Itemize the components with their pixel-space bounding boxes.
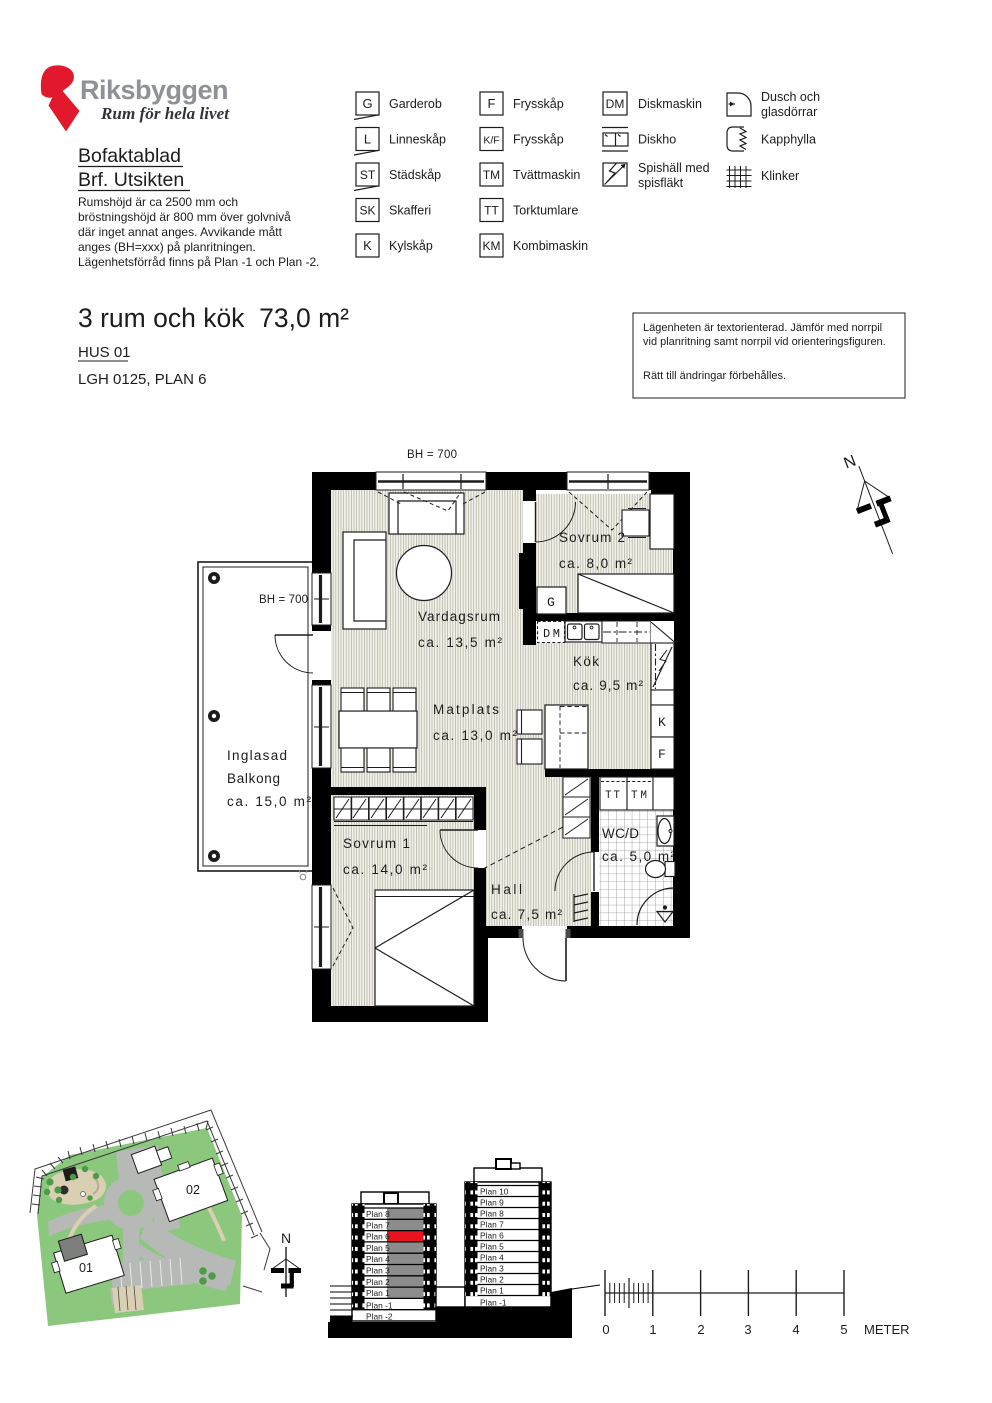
svg-text:DM: DM — [606, 97, 625, 111]
svg-text:Rätt till ändringar förbehålle: Rätt till ändringar förbehålles. — [643, 370, 786, 382]
svg-text:Plan 6: Plan 6 — [480, 1231, 504, 1241]
svg-text:Balkong: Balkong — [227, 771, 280, 786]
svg-text:N: N — [281, 1230, 291, 1246]
svg-text:0: 0 — [602, 1322, 609, 1337]
svg-text:Frysskåp: Frysskåp — [513, 133, 564, 147]
svg-text:Lägenheten är textorienterad.: Lägenheten är textorienterad. Jämför med… — [643, 322, 882, 334]
svg-text:TT: TT — [484, 204, 499, 218]
svg-text:Plan -2: Plan -2 — [366, 1312, 393, 1322]
svg-text:ca. 8,0 m²: ca. 8,0 m² — [559, 556, 633, 571]
svg-text:N: N — [842, 452, 859, 472]
svg-text:Sovrum 2: Sovrum 2 — [559, 530, 625, 545]
svg-text:Sovrum 1: Sovrum 1 — [343, 836, 410, 851]
svg-text:Linneskåp: Linneskåp — [389, 133, 446, 147]
svg-text:Plan 8: Plan 8 — [480, 1209, 504, 1219]
svg-text:F: F — [488, 96, 496, 111]
svg-text:vid planritning samt norrpil v: vid planritning samt norrpil vid oriente… — [643, 336, 886, 348]
svg-text:glasdörrar: glasdörrar — [761, 105, 817, 119]
svg-text:Torktumlare: Torktumlare — [513, 204, 578, 218]
svg-text:BH = 700: BH = 700 — [259, 594, 308, 606]
svg-text:bröstningshöjd är 800 mm över: bröstningshöjd är 800 mm över golvnivå — [78, 210, 291, 224]
svg-text:1: 1 — [649, 1322, 656, 1337]
svg-text:4: 4 — [792, 1322, 799, 1337]
svg-text:ST: ST — [360, 168, 376, 182]
svg-text:där inget annat anges. Avvikan: där inget annat anges. Avvikande mått — [78, 225, 283, 239]
svg-text:TM: TM — [483, 168, 500, 182]
svg-text:Plan 3: Plan 3 — [480, 1264, 504, 1274]
svg-text:Garderob: Garderob — [389, 97, 442, 111]
svg-text:Plan 1: Plan 1 — [480, 1286, 504, 1296]
svg-text:Plan 1: Plan 1 — [366, 1288, 390, 1298]
svg-text:02: 02 — [186, 1183, 200, 1197]
svg-text:Kombimaskin: Kombimaskin — [513, 239, 588, 253]
svg-text:G: G — [547, 595, 555, 610]
svg-text:Klinker: Klinker — [761, 169, 799, 183]
svg-text:3: 3 — [744, 1322, 751, 1337]
svg-text:BH = 700: BH = 700 — [407, 449, 457, 461]
svg-text:Spishäll med: Spishäll med — [638, 161, 710, 175]
svg-text:METER: METER — [864, 1322, 910, 1337]
svg-text:Plan 3: Plan 3 — [366, 1266, 390, 1276]
svg-text:Plan 8: Plan 8 — [366, 1209, 390, 1219]
svg-text:Riksbyggen: Riksbyggen — [80, 75, 228, 105]
svg-text:Kök: Kök — [573, 654, 599, 669]
svg-text:Kylskåp: Kylskåp — [389, 239, 433, 253]
svg-text:Plan 5: Plan 5 — [480, 1242, 504, 1252]
svg-text:L: L — [364, 132, 371, 147]
svg-text:Plan 5: Plan 5 — [366, 1243, 390, 1253]
svg-text:Plan -1: Plan -1 — [366, 1300, 393, 1310]
svg-text:Kapphylla: Kapphylla — [761, 133, 816, 147]
svg-text:anges (BH=xxx) på planritninge: anges (BH=xxx) på planritningen. — [78, 240, 256, 254]
svg-text:Diskmaskin: Diskmaskin — [638, 97, 702, 111]
svg-text:Plan 7: Plan 7 — [480, 1220, 504, 1230]
svg-text:HUS 01: HUS 01 — [78, 344, 131, 361]
svg-text:Tvättmaskin: Tvättmaskin — [513, 168, 580, 182]
svg-text:Plan -1: Plan -1 — [480, 1298, 507, 1308]
svg-text:2: 2 — [697, 1322, 704, 1337]
svg-text:5: 5 — [840, 1322, 847, 1337]
svg-text:Plan 4: Plan 4 — [480, 1253, 504, 1263]
svg-text:Plan 10: Plan 10 — [480, 1187, 509, 1197]
svg-text:ca. 13,0 m²: ca. 13,0 m² — [433, 728, 518, 743]
svg-text:Rum för hela livet: Rum för hela livet — [100, 104, 230, 123]
svg-text:K: K — [363, 238, 372, 253]
svg-text:ca. 7,5 m²: ca. 7,5 m² — [491, 907, 563, 922]
svg-text:ca. 14,0 m²: ca. 14,0 m² — [343, 862, 428, 877]
svg-text:Plan 2: Plan 2 — [480, 1275, 504, 1285]
svg-text:ca. 5,0 m²: ca. 5,0 m² — [602, 849, 676, 864]
svg-text:Rumshöjd är ca 2500 mm och: Rumshöjd är ca 2500 mm och — [78, 195, 238, 209]
svg-text:Städskåp: Städskåp — [389, 168, 441, 182]
svg-text:SK: SK — [359, 204, 375, 218]
svg-text:Lägenhetsförråd finns på Plan: Lägenhetsförråd finns på Plan -1 och Pla… — [78, 255, 320, 269]
svg-text:Matplats: Matplats — [433, 702, 499, 717]
svg-text:Plan 4: Plan 4 — [366, 1254, 390, 1264]
svg-text:Plan 7: Plan 7 — [366, 1220, 390, 1230]
svg-text:G: G — [362, 96, 372, 111]
svg-text:Skafferi: Skafferi — [389, 204, 431, 218]
svg-text:LGH 0125, PLAN 6: LGH 0125, PLAN 6 — [78, 371, 206, 388]
svg-text:Inglasad: Inglasad — [227, 748, 287, 763]
svg-text:01: 01 — [79, 1261, 93, 1275]
svg-text:Dusch och: Dusch och — [761, 90, 820, 104]
svg-text:Vardagsrum: Vardagsrum — [418, 609, 500, 624]
svg-text:TT: TT — [605, 790, 620, 802]
svg-text:Plan 6: Plan 6 — [366, 1232, 390, 1242]
svg-text:Diskho: Diskho — [638, 133, 676, 147]
svg-text:ca. 9,5 m²: ca. 9,5 m² — [573, 678, 644, 693]
svg-text:Bofaktablad: Bofaktablad — [78, 145, 181, 167]
svg-text:Plan 9: Plan 9 — [480, 1198, 504, 1208]
svg-text:WC/D: WC/D — [602, 826, 639, 841]
svg-text:F: F — [658, 747, 666, 762]
svg-text:K: K — [658, 715, 666, 730]
svg-text:Brf. Utsikten: Brf. Utsikten — [78, 169, 184, 191]
svg-text:Frysskåp: Frysskåp — [513, 97, 564, 111]
svg-text:ca. 13,5 m²: ca. 13,5 m² — [418, 635, 503, 650]
svg-text:Plan 2: Plan 2 — [366, 1277, 390, 1287]
svg-text:KM: KM — [483, 239, 501, 253]
svg-text:spisfläkt: spisfläkt — [638, 176, 684, 190]
svg-text:3 rum och kök 73,0 m²: 3 rum och kök 73,0 m² — [78, 303, 349, 333]
svg-text:ca. 15,0 m²: ca. 15,0 m² — [227, 794, 312, 809]
svg-text:K/F: K/F — [483, 135, 499, 147]
